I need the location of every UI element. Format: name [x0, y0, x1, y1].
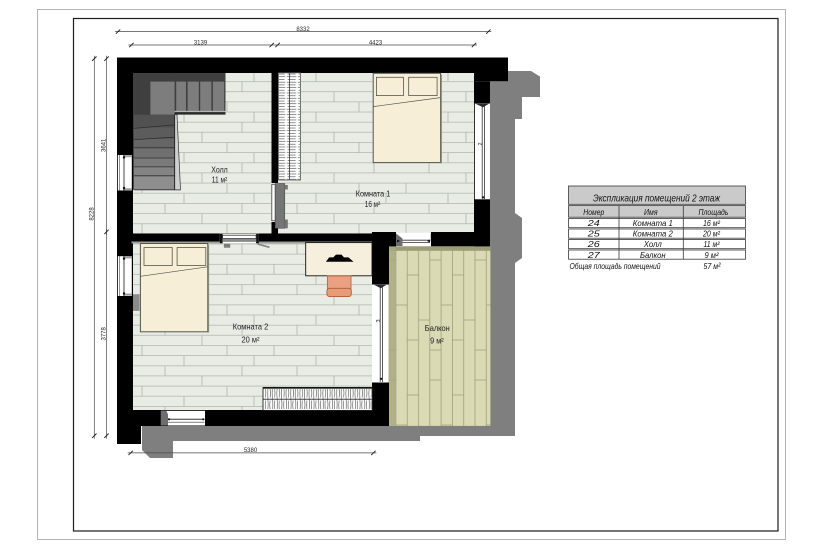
- svg-text:9 м²: 9 м²: [705, 251, 719, 260]
- svg-text:Холл: Холл: [211, 165, 228, 174]
- svg-text:Комната 2: Комната 2: [233, 322, 269, 331]
- svg-text:26: 26: [586, 240, 600, 249]
- svg-text:2: 2: [478, 142, 484, 145]
- svg-text:Экспликация помещений 2 этаж: Экспликация помещений 2 этаж: [593, 193, 721, 205]
- svg-text:4423: 4423: [369, 40, 383, 46]
- svg-text:25: 25: [586, 230, 600, 239]
- svg-text:3139: 3139: [194, 40, 208, 46]
- svg-text:Имя: Имя: [644, 208, 658, 217]
- svg-text:3778: 3778: [102, 326, 108, 340]
- svg-text:Номер: Номер: [583, 208, 604, 217]
- svg-text:Площадь: Площадь: [699, 208, 729, 217]
- svg-text:16 м²: 16 м²: [703, 219, 720, 228]
- svg-text:Комната 1: Комната 1: [633, 219, 673, 228]
- svg-text:8332: 8332: [296, 27, 310, 33]
- svg-text:20 м²: 20 м²: [702, 230, 720, 239]
- svg-text:8228: 8228: [89, 207, 95, 221]
- svg-text:11 м²: 11 м²: [212, 176, 228, 185]
- svg-text:9 м²: 9 м²: [430, 336, 444, 345]
- svg-text:5380: 5380: [244, 448, 258, 454]
- svg-text:20 м²: 20 м²: [242, 335, 260, 344]
- svg-text:57 м²: 57 м²: [704, 261, 722, 271]
- svg-text:3: 3: [376, 319, 382, 322]
- svg-text:Балкон: Балкон: [425, 324, 450, 333]
- svg-text:Холл: Холл: [643, 240, 662, 249]
- svg-text:Балкон: Балкон: [640, 251, 666, 260]
- svg-text:Комната 2: Комната 2: [633, 230, 674, 239]
- svg-text:3641: 3641: [102, 138, 108, 152]
- svg-text:Комната 1: Комната 1: [356, 189, 391, 198]
- svg-text:Общая площадь помещений: Общая площадь помещений: [570, 261, 661, 271]
- svg-text:24: 24: [586, 219, 600, 228]
- svg-text:16 м²: 16 м²: [365, 200, 381, 209]
- svg-text:27: 27: [586, 251, 600, 260]
- svg-text:11 м²: 11 м²: [704, 240, 720, 249]
